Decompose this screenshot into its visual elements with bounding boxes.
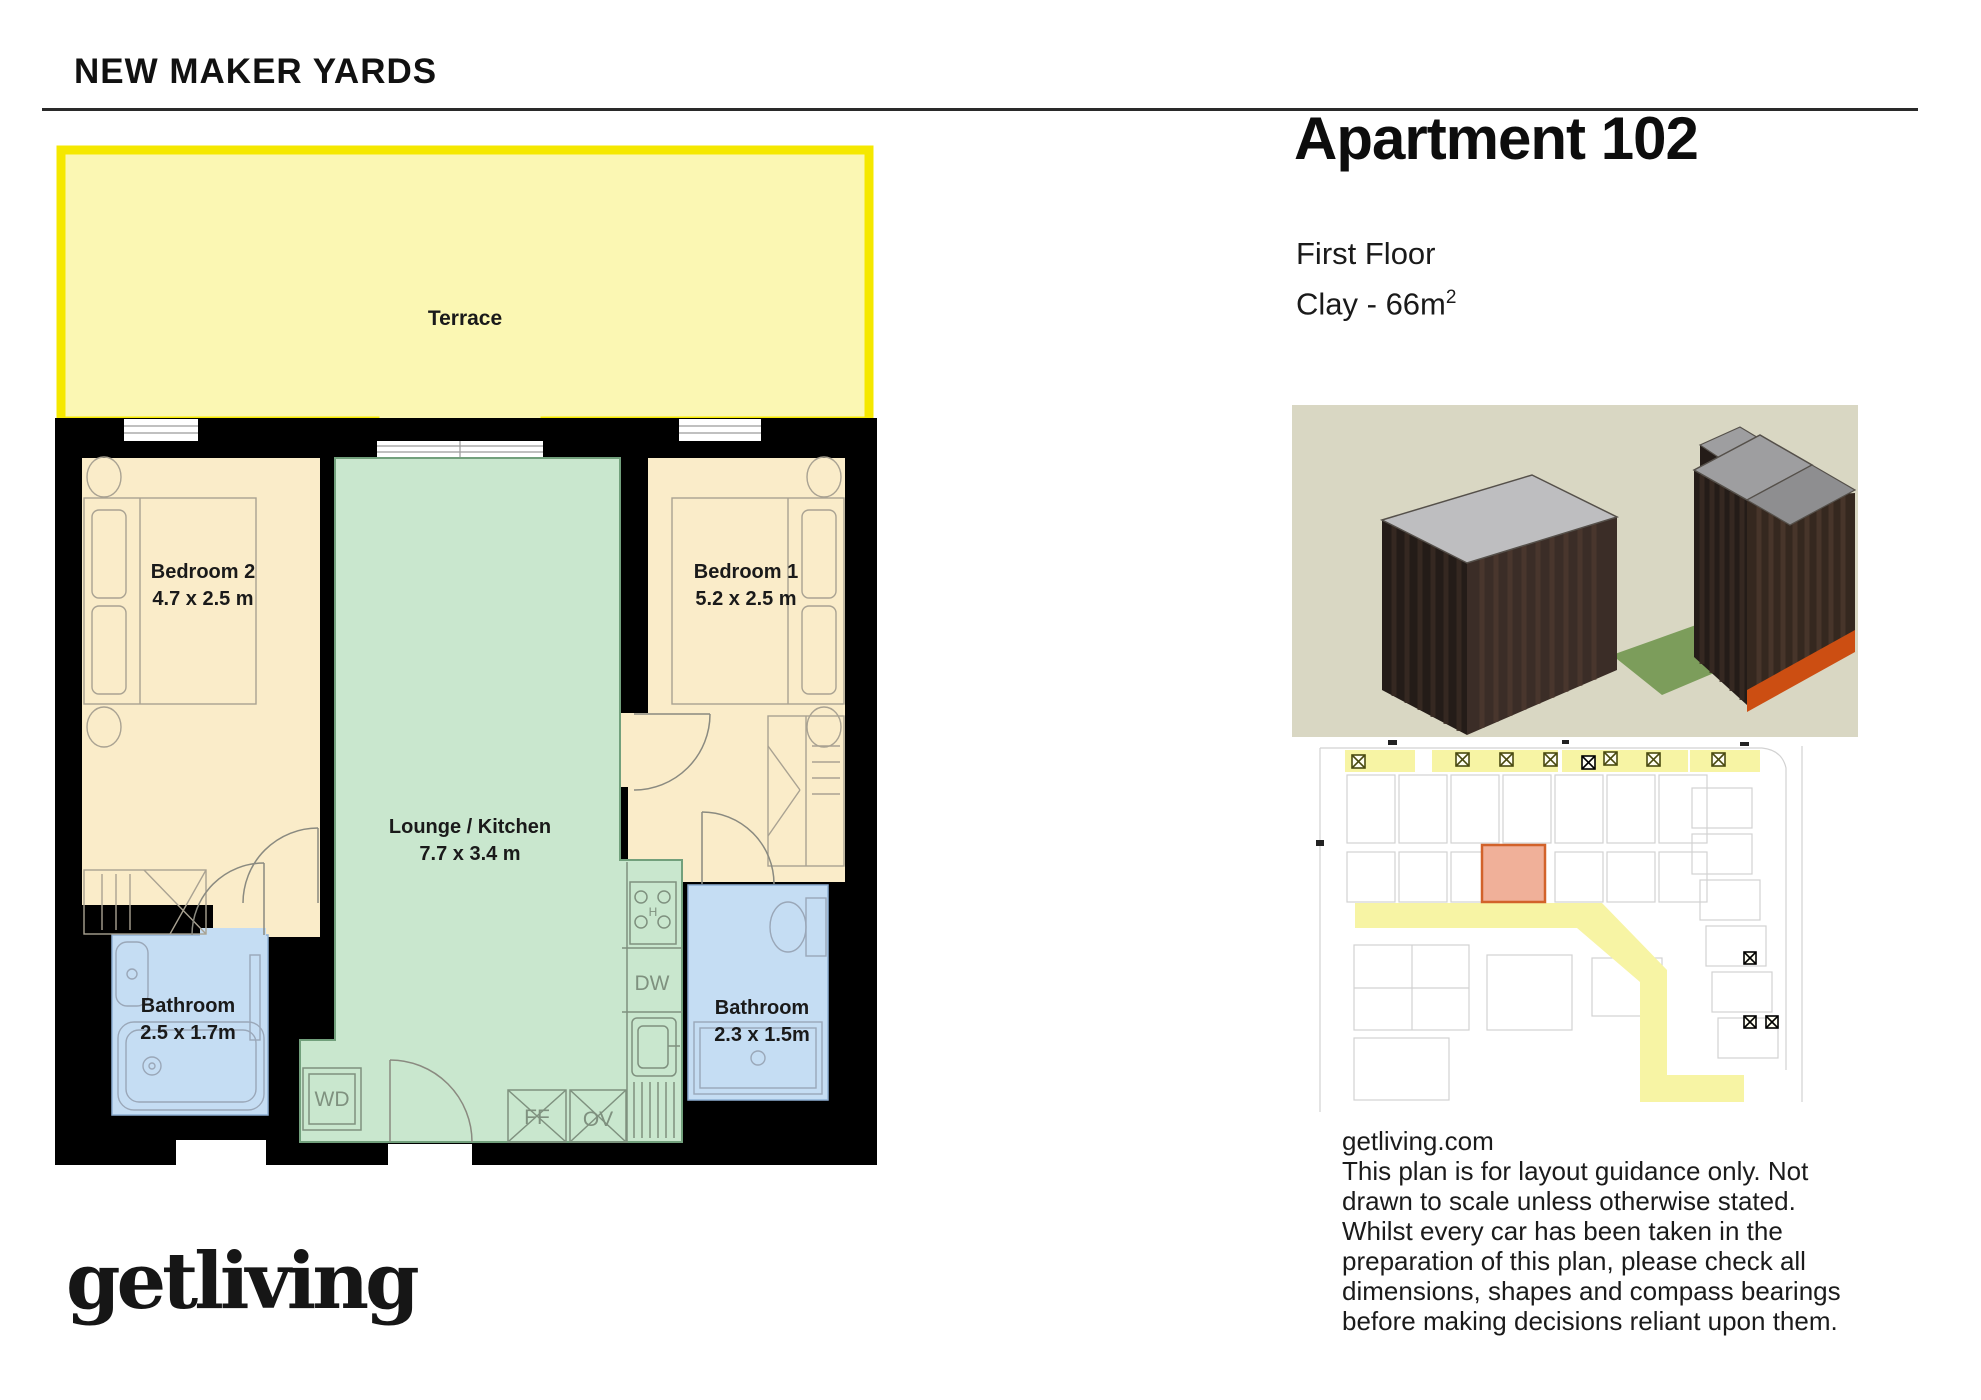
floor-plan: Terrace: [50, 132, 890, 1177]
entry-opening: [388, 1144, 472, 1165]
apartment-spec: Clay - 66m2: [1296, 276, 1456, 326]
site-plan-highlighted-unit: [1482, 845, 1545, 902]
oven-label: OV: [583, 1108, 613, 1131]
bedroom1-door-opening: [618, 713, 650, 787]
bathroom-left-dims: 2.5 x 1.7m: [140, 1022, 236, 1044]
disclaimer: getliving.com This plan is for layout gu…: [1342, 1126, 1922, 1336]
disclaimer-line: drawn to scale unless otherwise stated.: [1342, 1186, 1922, 1216]
bedroom2-window: [124, 419, 198, 441]
site-plan-background: [1292, 740, 1862, 1125]
bottom-opening: [176, 1140, 266, 1165]
terrace-area: [61, 150, 869, 438]
building-render: [1292, 405, 1858, 737]
bedroom1-dims: 5.2 x 2.5 m: [695, 588, 796, 610]
disclaimer-line: before making decisions reliant upon the…: [1342, 1306, 1922, 1336]
bedroom2-dims: 4.7 x 2.5 m: [152, 588, 253, 610]
washer-dryer-label: WD: [315, 1088, 350, 1111]
bathroom-right-dims: 2.3 x 1.5m: [714, 1024, 810, 1046]
fridge-freezer-label: FF: [524, 1106, 550, 1129]
disclaimer-line: dimensions, shapes and compass bearings: [1342, 1276, 1922, 1306]
apartment-spec-text: Clay - 66m: [1296, 286, 1446, 321]
apartment-title: Apartment 102: [1294, 104, 1698, 173]
terrace-label: Terrace: [428, 307, 502, 330]
lounge-dims: 7.7 x 3.4 m: [419, 843, 520, 865]
bedroom1-window: [679, 419, 761, 441]
getliving-logo: getliving: [66, 1236, 416, 1327]
bedroom2-label: Bedroom 2: [151, 561, 255, 583]
terrace-sliding-door: [377, 441, 543, 457]
disclaimer-line: This plan is for layout guidance only. N…: [1342, 1156, 1922, 1186]
apartment-floor: First Floor: [1296, 232, 1456, 276]
apartment-spec-superscript: 2: [1446, 287, 1457, 308]
bedroom1-label: Bedroom 1: [694, 561, 798, 583]
bathroom-left-label: Bathroom: [141, 995, 235, 1017]
hob-label: H: [649, 905, 658, 919]
apartment-subtitle: First Floor Clay - 66m2: [1296, 232, 1456, 326]
bathroom-right-room: [688, 885, 828, 1100]
bedroom1-room: [628, 458, 845, 882]
site-plan: [1292, 740, 1862, 1125]
lounge-label: Lounge / Kitchen: [389, 816, 551, 838]
bathroom-right-label: Bathroom: [715, 997, 809, 1019]
floorplan-page: NEW MAKER YARDS Terrace: [0, 0, 1981, 1400]
bathroom-left-door-opening: [200, 928, 266, 937]
dishwasher-label: DW: [635, 972, 670, 995]
disclaimer-line: Whilst every car has been taken in the: [1342, 1216, 1922, 1246]
website-link[interactable]: getliving.com: [1342, 1126, 1922, 1156]
disclaimer-line: preparation of this plan, please check a…: [1342, 1246, 1922, 1276]
project-name: NEW MAKER YARDS: [74, 52, 437, 92]
bedroom2-room: [82, 458, 320, 905]
